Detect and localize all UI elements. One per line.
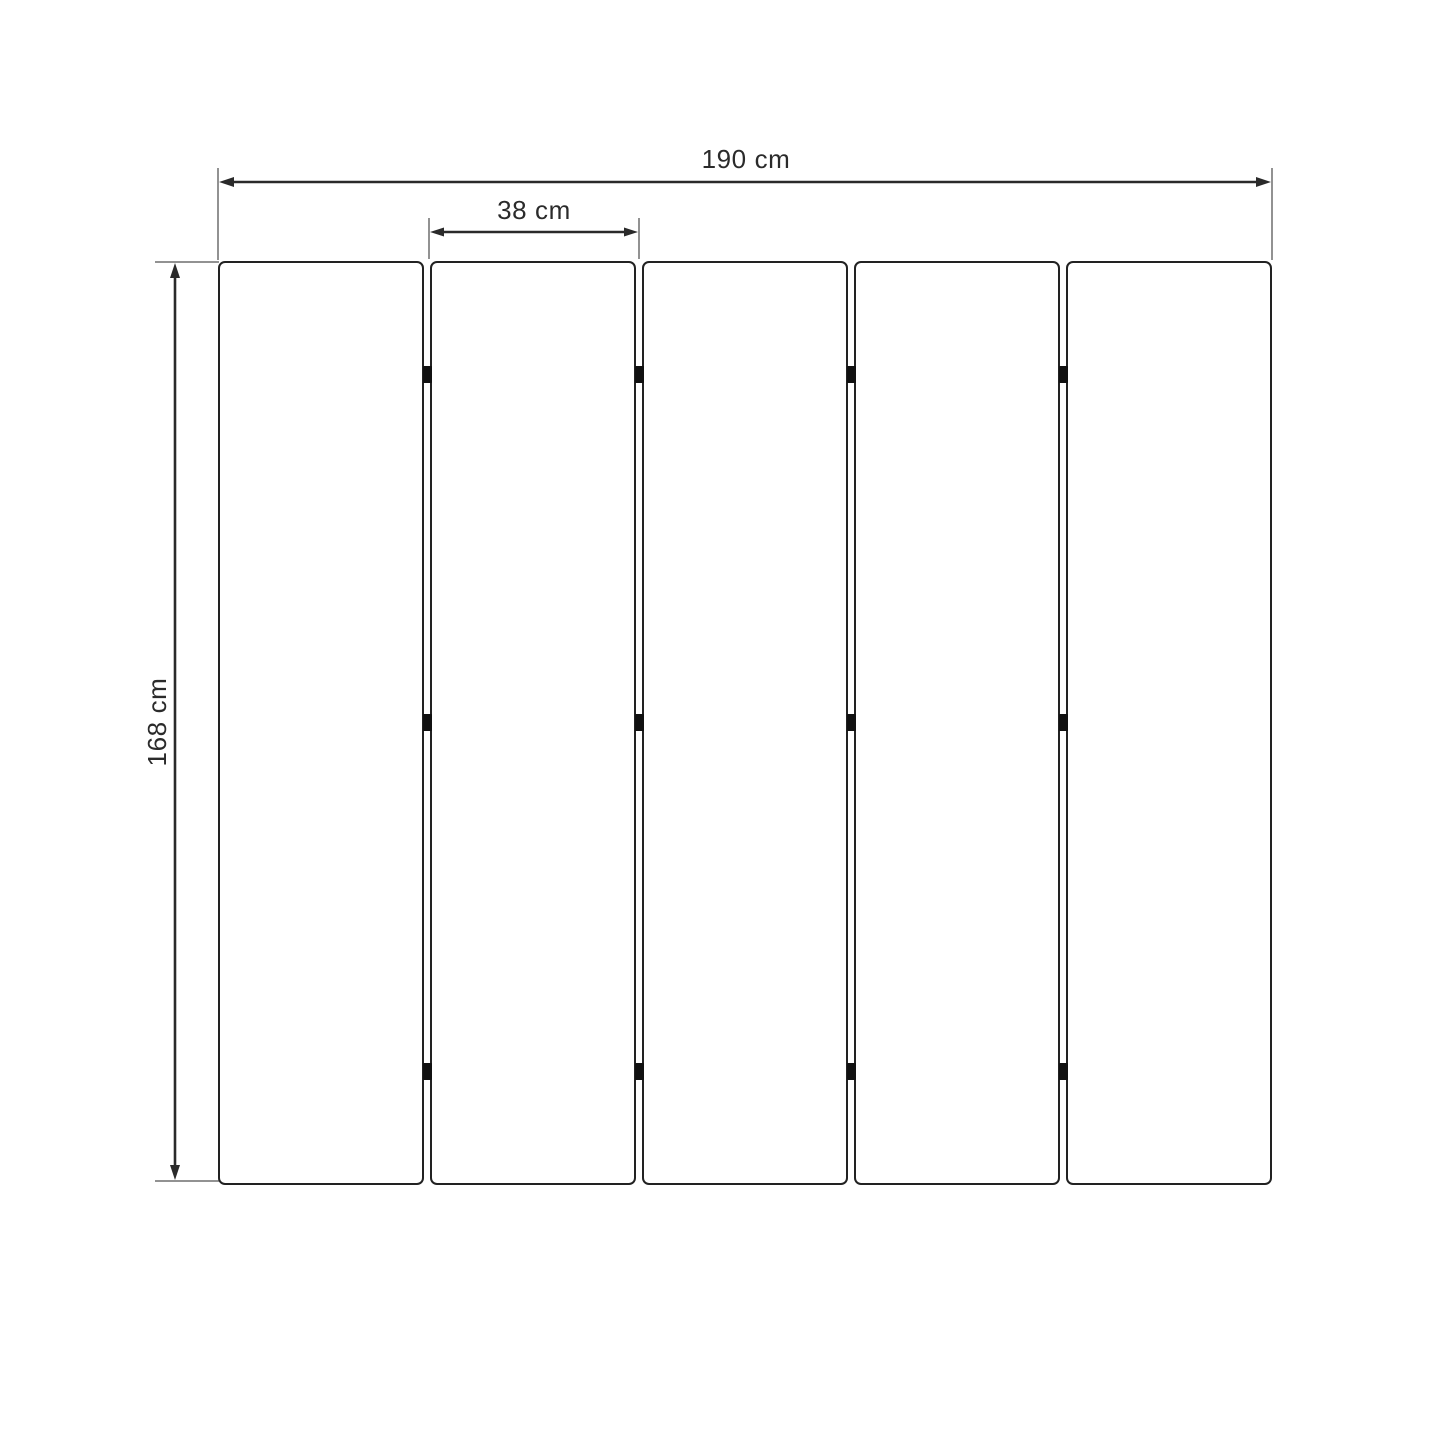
arrowhead-left-icon [219, 177, 234, 187]
arrowhead-up-icon [170, 263, 180, 278]
dimension-diagram: 190 cm 38 cm 168 cm [0, 0, 1445, 1445]
hinge [423, 714, 432, 731]
arrowhead-down-icon [170, 1165, 180, 1180]
dimension-line-panel-width [430, 228, 638, 237]
hinge [847, 1063, 856, 1080]
hinge [1059, 366, 1068, 383]
hinge [423, 1063, 432, 1080]
hinge [847, 714, 856, 731]
panel-row [218, 261, 1272, 1185]
dimension-line-total-width [219, 177, 1271, 187]
hinge [847, 366, 856, 383]
hinge [1059, 714, 1068, 731]
panel-1 [218, 261, 424, 1185]
panel-width-label: 38 cm [497, 197, 571, 223]
height-label: 168 cm [144, 678, 170, 767]
arrowhead-left-icon [430, 228, 444, 237]
panel-4 [854, 261, 1060, 1185]
hinge [635, 714, 644, 731]
hinge [1059, 1063, 1068, 1080]
hinge [635, 366, 644, 383]
panel-2 [430, 261, 636, 1185]
arrowhead-right-icon [624, 228, 638, 237]
panel-5 [1066, 261, 1272, 1185]
arrowhead-right-icon [1256, 177, 1271, 187]
hinge [423, 366, 432, 383]
panel-3 [642, 261, 848, 1185]
total-width-label: 190 cm [702, 146, 791, 172]
hinge [635, 1063, 644, 1080]
